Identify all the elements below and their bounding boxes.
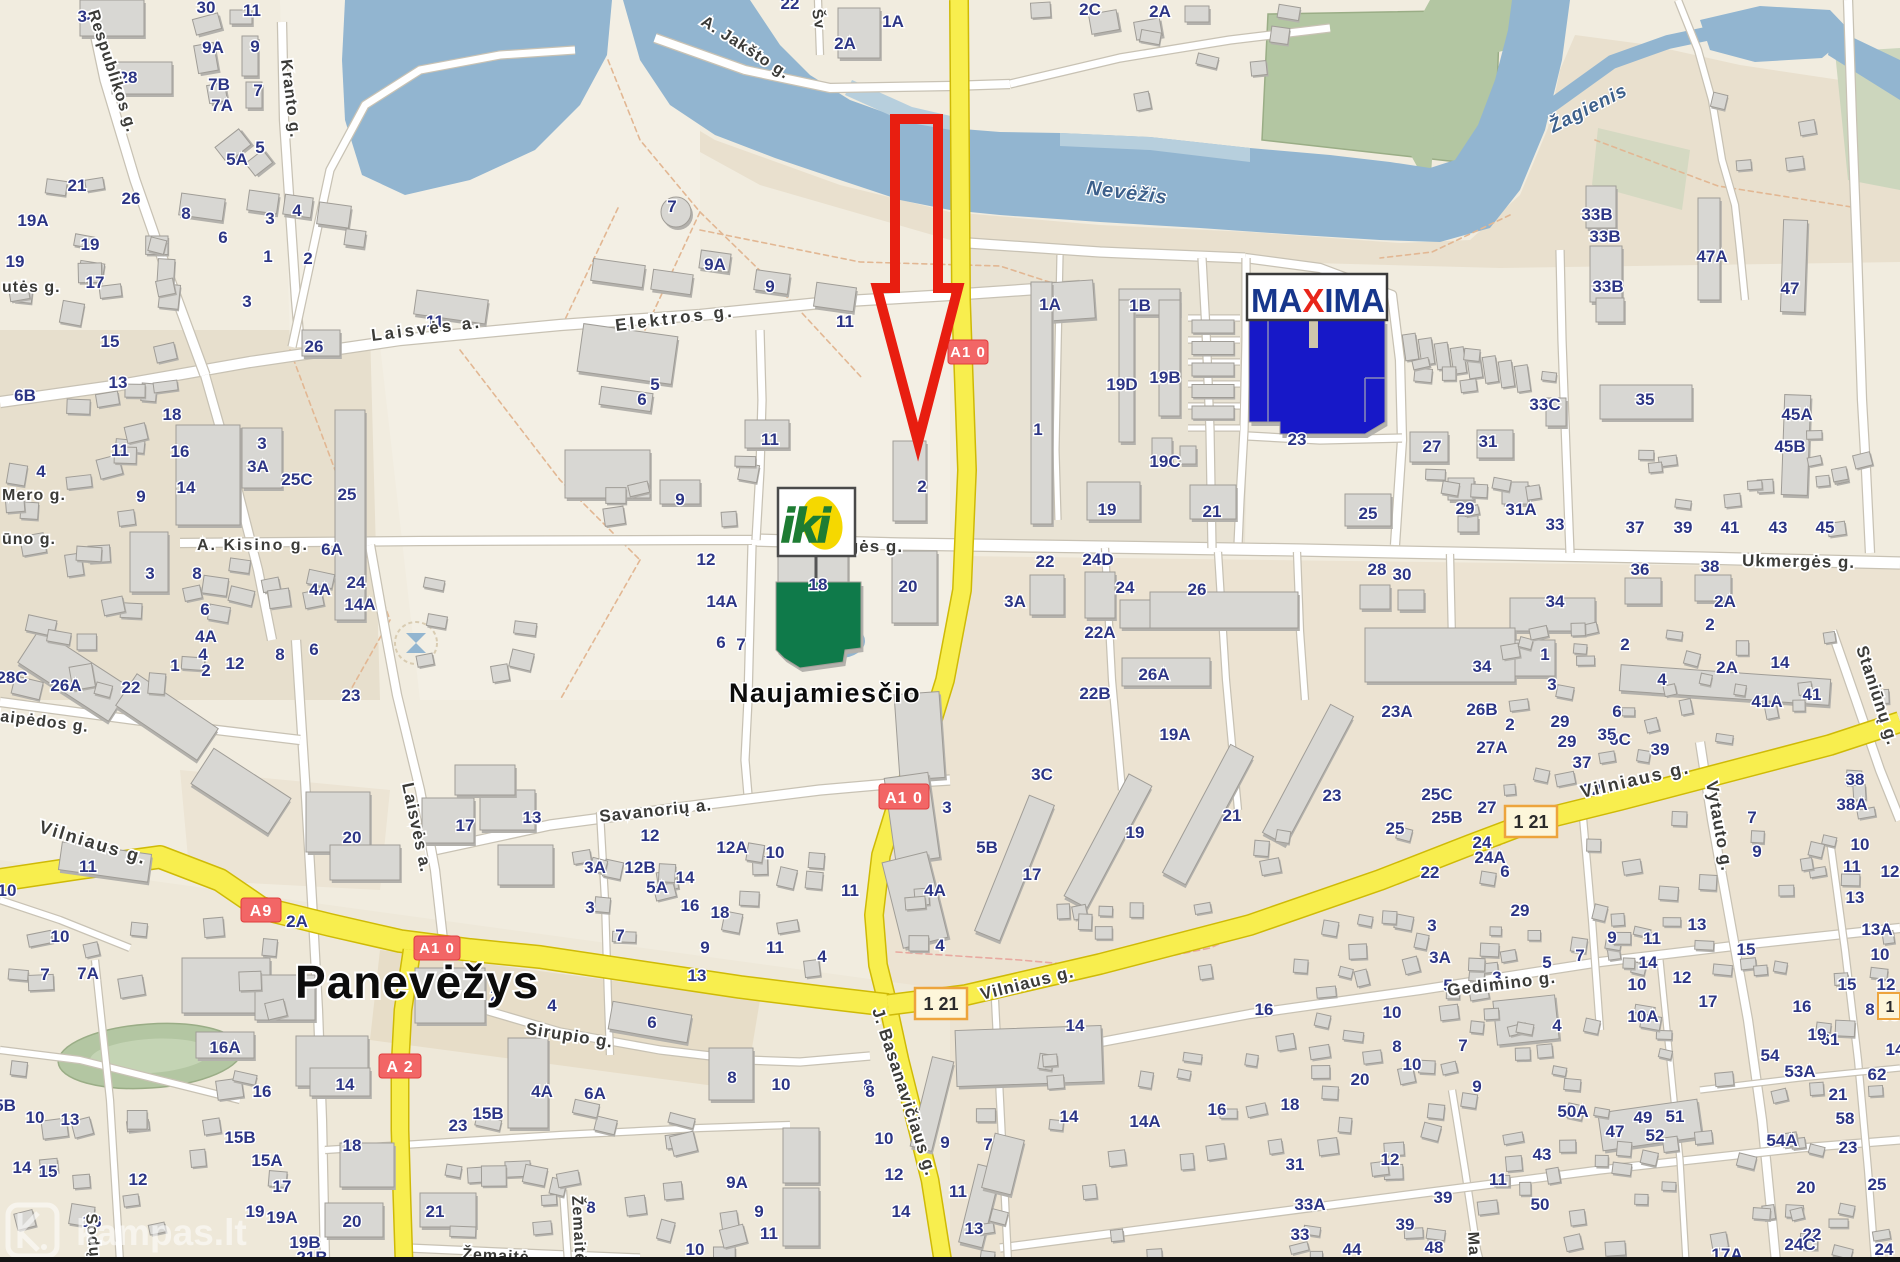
svg-text:3A: 3A	[1429, 948, 1451, 967]
svg-text:10: 10	[772, 1075, 791, 1094]
svg-text:12A: 12A	[716, 838, 747, 857]
svg-text:23A: 23A	[1381, 702, 1412, 721]
svg-text:2A: 2A	[1716, 658, 1738, 677]
svg-text:8: 8	[865, 1082, 874, 1101]
svg-text:12: 12	[1877, 975, 1896, 994]
svg-text:26: 26	[305, 337, 324, 356]
svg-text:11: 11	[1643, 929, 1661, 948]
svg-text:29: 29	[1558, 732, 1577, 751]
svg-text:37: 37	[1626, 518, 1645, 537]
svg-text:utės g.: utės g.	[2, 279, 61, 296]
svg-text:26: 26	[122, 189, 141, 208]
svg-text:3A: 3A	[584, 858, 606, 877]
svg-text:27: 27	[1423, 437, 1442, 456]
svg-text:21: 21	[426, 1202, 445, 1221]
svg-text:4: 4	[1657, 670, 1667, 689]
svg-text:12: 12	[1381, 1150, 1400, 1169]
svg-text:33B: 33B	[1581, 205, 1612, 224]
svg-text:15: 15	[1737, 940, 1756, 959]
svg-text:10: 10	[1628, 975, 1647, 994]
svg-text:45B: 45B	[1774, 437, 1805, 456]
svg-text:A1 0: A1 0	[950, 344, 986, 361]
svg-text:11: 11	[949, 1182, 967, 1201]
svg-text:9: 9	[250, 37, 259, 56]
svg-text:54: 54	[1761, 1046, 1780, 1065]
svg-text:12: 12	[641, 826, 660, 845]
svg-text:6: 6	[647, 1013, 656, 1032]
svg-text:10: 10	[51, 927, 70, 946]
svg-text:7: 7	[1747, 808, 1756, 827]
svg-text:6: 6	[200, 600, 209, 619]
svg-text:35: 35	[1598, 725, 1617, 744]
svg-text:28C: 28C	[0, 668, 28, 687]
svg-text:10: 10	[26, 1108, 45, 1127]
svg-text:18: 18	[163, 405, 182, 424]
svg-text:20: 20	[1797, 1178, 1816, 1197]
svg-text:12: 12	[697, 550, 716, 569]
svg-text:52: 52	[1646, 1126, 1665, 1145]
svg-text:5: 5	[255, 138, 264, 157]
svg-text:41A: 41A	[1751, 692, 1782, 711]
svg-text:11: 11	[761, 430, 779, 449]
svg-text:26A: 26A	[1138, 665, 1169, 684]
svg-text:11: 11	[111, 441, 129, 460]
svg-text:7: 7	[253, 81, 262, 100]
svg-text:26A: 26A	[50, 676, 81, 695]
svg-text:28: 28	[1368, 560, 1387, 579]
svg-text:15: 15	[1838, 975, 1857, 994]
svg-text:21: 21	[68, 176, 87, 195]
svg-text:5A: 5A	[226, 150, 248, 169]
svg-text:24D: 24D	[1082, 550, 1113, 569]
svg-text:6: 6	[637, 390, 646, 409]
svg-text:34: 34	[1473, 657, 1492, 676]
svg-text:13: 13	[688, 966, 707, 985]
svg-text:19: 19	[6, 252, 25, 271]
svg-text:9: 9	[675, 490, 684, 509]
svg-text:21: 21	[1223, 806, 1242, 825]
svg-text:9: 9	[754, 1202, 763, 1221]
svg-text:14: 14	[1639, 953, 1658, 972]
svg-text:23: 23	[1839, 1138, 1858, 1157]
svg-text:2: 2	[917, 477, 926, 496]
svg-text:22: 22	[1036, 552, 1055, 571]
svg-text:22B: 22B	[1079, 684, 1110, 703]
svg-text:15B: 15B	[224, 1128, 255, 1147]
svg-text:1A: 1A	[1039, 295, 1061, 314]
svg-text:22A: 22A	[1084, 623, 1115, 642]
svg-text:14A: 14A	[344, 595, 375, 614]
svg-text:8: 8	[1865, 1000, 1874, 1019]
svg-text:38: 38	[1701, 557, 1720, 576]
svg-text:22: 22	[122, 678, 141, 697]
svg-text:6: 6	[716, 633, 725, 652]
svg-text:9: 9	[1752, 842, 1761, 861]
svg-text:26: 26	[1188, 580, 1207, 599]
svg-text:13: 13	[965, 1219, 984, 1238]
svg-text:2: 2	[201, 661, 210, 680]
svg-text:10: 10	[1851, 835, 1870, 854]
svg-text:5A: 5A	[646, 878, 668, 897]
svg-text:14A: 14A	[1129, 1112, 1160, 1131]
svg-text:7: 7	[983, 1135, 992, 1154]
svg-text:23: 23	[342, 686, 361, 705]
svg-text:1: 1	[1033, 420, 1042, 439]
svg-text:13: 13	[109, 373, 128, 392]
svg-text:5B: 5B	[0, 1096, 16, 1115]
svg-text:16: 16	[681, 896, 700, 915]
svg-text:25: 25	[1386, 819, 1405, 838]
svg-text:10A: 10A	[1627, 1007, 1658, 1026]
svg-text:7: 7	[615, 926, 624, 945]
svg-text:4A: 4A	[195, 627, 217, 646]
svg-text:2C: 2C	[1079, 0, 1101, 19]
svg-text:19B: 19B	[1149, 368, 1180, 387]
svg-text:17: 17	[86, 273, 105, 292]
svg-text:6: 6	[1500, 862, 1509, 881]
svg-text:9A: 9A	[202, 38, 224, 57]
svg-text:10: 10	[1871, 945, 1890, 964]
svg-text:15A: 15A	[251, 1151, 282, 1170]
svg-text:Ukmergės g.: Ukmergės g.	[1742, 551, 1855, 572]
svg-text:14: 14	[1066, 1016, 1085, 1035]
svg-text:2A: 2A	[286, 912, 308, 931]
svg-text:18: 18	[343, 1136, 362, 1155]
svg-text:11: 11	[766, 938, 784, 957]
svg-text:19: 19	[81, 235, 100, 254]
svg-text:20: 20	[1351, 1070, 1370, 1089]
svg-text:3A: 3A	[1004, 592, 1026, 611]
svg-text:7: 7	[40, 965, 49, 984]
svg-text:11: 11	[836, 312, 854, 331]
svg-text:4: 4	[935, 936, 945, 955]
svg-text:8: 8	[586, 1198, 595, 1217]
svg-text:11: 11	[1843, 857, 1861, 876]
svg-text:10: 10	[686, 1240, 705, 1259]
svg-text:49: 49	[1634, 1108, 1653, 1127]
svg-text:19A: 19A	[266, 1208, 297, 1227]
svg-text:47: 47	[1606, 1122, 1625, 1141]
svg-text:19D: 19D	[1106, 375, 1137, 394]
svg-text:45A: 45A	[1781, 405, 1812, 424]
svg-text:6: 6	[309, 640, 318, 659]
svg-text:A1 0: A1 0	[419, 940, 455, 957]
svg-text:A. Kisino g.: A. Kisino g.	[197, 537, 309, 554]
svg-text:29: 29	[1456, 499, 1475, 518]
svg-text:13: 13	[1846, 888, 1865, 907]
svg-text:50A: 50A	[1557, 1102, 1588, 1121]
svg-text:7: 7	[667, 197, 676, 216]
svg-text:3: 3	[1547, 675, 1556, 694]
svg-text:12B: 12B	[624, 858, 655, 877]
svg-text:17: 17	[1699, 992, 1718, 1011]
svg-text:62: 62	[1868, 1065, 1887, 1084]
svg-text:2A: 2A	[834, 34, 856, 53]
svg-text:10: 10	[1403, 1055, 1422, 1074]
svg-text:19A: 19A	[1159, 725, 1190, 744]
svg-text:25: 25	[1868, 1175, 1887, 1194]
svg-text:10: 10	[1383, 1003, 1402, 1022]
svg-text:31A: 31A	[1505, 500, 1536, 519]
svg-text:13: 13	[523, 808, 542, 827]
svg-text:A1 0: A1 0	[885, 790, 923, 807]
svg-text:4: 4	[1552, 1016, 1562, 1035]
svg-text:41: 41	[1803, 685, 1822, 704]
svg-text:19: 19	[1808, 1025, 1827, 1044]
svg-text:22: 22	[1421, 863, 1440, 882]
svg-text:53A: 53A	[1784, 1062, 1815, 1081]
svg-text:9: 9	[700, 938, 709, 957]
svg-text:30: 30	[1393, 565, 1412, 584]
svg-text:14: 14	[892, 1202, 911, 1221]
svg-text:12: 12	[226, 654, 245, 673]
svg-text:4: 4	[292, 201, 302, 220]
svg-text:12: 12	[1881, 862, 1900, 881]
svg-text:17: 17	[273, 1177, 292, 1196]
svg-text:9: 9	[1472, 1077, 1481, 1096]
svg-text:19: 19	[1126, 823, 1145, 842]
svg-text:14A: 14A	[706, 592, 737, 611]
svg-text:45: 45	[1816, 518, 1835, 537]
svg-text:16: 16	[1208, 1100, 1227, 1119]
svg-text:9: 9	[136, 487, 145, 506]
svg-text:3: 3	[265, 209, 274, 228]
svg-text:13A: 13A	[1861, 920, 1892, 939]
svg-text:20: 20	[899, 577, 918, 596]
svg-text:14: 14	[13, 1158, 32, 1177]
svg-text:15: 15	[101, 332, 120, 351]
svg-text:51: 51	[1666, 1107, 1685, 1126]
svg-text:30: 30	[197, 0, 216, 17]
svg-text:54A: 54A	[1766, 1131, 1797, 1150]
svg-text:33: 33	[1546, 515, 1565, 534]
svg-text:15B: 15B	[472, 1104, 503, 1123]
svg-text:4: 4	[36, 462, 46, 481]
svg-text:18: 18	[711, 903, 730, 922]
svg-text:34: 34	[1546, 592, 1565, 611]
svg-text:9: 9	[1607, 928, 1616, 947]
svg-text:12: 12	[1673, 968, 1692, 987]
svg-text:39: 39	[1674, 518, 1693, 537]
svg-text:6A: 6A	[584, 1084, 606, 1103]
svg-text:7: 7	[1575, 946, 1584, 965]
svg-text:4A: 4A	[924, 881, 946, 900]
svg-text:6A: 6A	[321, 540, 343, 559]
svg-text:11: 11	[841, 881, 859, 900]
svg-text:14: 14	[336, 1075, 355, 1094]
svg-text:2A: 2A	[1149, 2, 1171, 21]
svg-text:14: 14	[1771, 653, 1790, 672]
svg-text:16: 16	[1255, 1000, 1274, 1019]
svg-text:20: 20	[343, 1212, 362, 1231]
svg-text:19A: 19A	[17, 211, 48, 230]
svg-text:44: 44	[1343, 1240, 1362, 1259]
svg-text:1 21: 1 21	[1513, 812, 1548, 832]
svg-text:kampas.lt: kampas.lt	[76, 1212, 247, 1253]
svg-text:20: 20	[343, 828, 362, 847]
svg-text:iki: iki	[781, 500, 832, 553]
svg-text:25B: 25B	[1431, 808, 1462, 827]
svg-text:5B: 5B	[976, 838, 998, 857]
svg-text:9A: 9A	[726, 1173, 748, 1192]
svg-text:33B: 33B	[1592, 277, 1623, 296]
svg-text:8: 8	[275, 645, 284, 664]
svg-text:Šv: Šv	[808, 8, 829, 31]
svg-text:9A: 9A	[704, 255, 726, 274]
svg-text:3: 3	[1427, 916, 1436, 935]
svg-text:1: 1	[1886, 999, 1895, 1016]
svg-text:14: 14	[676, 868, 695, 887]
svg-text:24: 24	[1875, 1240, 1894, 1259]
svg-text:14: 14	[1886, 1040, 1900, 1059]
svg-text:19C: 19C	[1149, 452, 1180, 471]
svg-text:10: 10	[875, 1129, 894, 1148]
svg-text:13: 13	[61, 1110, 80, 1129]
svg-text:25C: 25C	[1421, 785, 1452, 804]
svg-text:41: 41	[1721, 518, 1740, 537]
svg-text:29: 29	[1551, 712, 1570, 731]
svg-text:11: 11	[243, 1, 261, 20]
svg-text:3C: 3C	[1031, 765, 1053, 784]
svg-text:Panevėžys: Panevėžys	[295, 956, 539, 1008]
svg-text:9: 9	[765, 277, 774, 296]
svg-text:3: 3	[257, 434, 266, 453]
svg-text:31: 31	[1286, 1155, 1305, 1174]
svg-text:5: 5	[650, 375, 659, 394]
svg-text:2: 2	[303, 249, 312, 268]
svg-text:7A: 7A	[77, 964, 99, 983]
svg-text:8: 8	[181, 204, 190, 223]
svg-text:43: 43	[1769, 518, 1788, 537]
svg-text:58: 58	[1836, 1109, 1855, 1128]
svg-text:16: 16	[253, 1082, 272, 1101]
svg-text:13: 13	[1688, 915, 1707, 934]
svg-text:1: 1	[1540, 645, 1549, 664]
svg-text:19: 19	[1098, 500, 1117, 519]
svg-text:25: 25	[338, 485, 357, 504]
svg-text:33C: 33C	[1529, 395, 1560, 414]
svg-text:4: 4	[547, 996, 557, 1015]
svg-text:10: 10	[0, 881, 16, 900]
svg-text:1 21: 1 21	[923, 994, 958, 1014]
svg-text:4: 4	[817, 947, 827, 966]
svg-text:11: 11	[760, 1224, 778, 1243]
svg-text:37: 37	[1573, 753, 1592, 772]
svg-text:43: 43	[1533, 1145, 1552, 1164]
svg-text:7A: 7A	[211, 96, 233, 115]
svg-text:18: 18	[809, 575, 828, 594]
svg-text:33: 33	[1291, 1225, 1310, 1244]
svg-text:48: 48	[1425, 1238, 1444, 1257]
svg-text:9: 9	[940, 1133, 949, 1152]
svg-text:MAXIMA: MAXIMA	[1251, 282, 1385, 319]
svg-text:39: 39	[1651, 740, 1670, 759]
svg-text:47: 47	[1781, 279, 1800, 298]
svg-text:8: 8	[192, 564, 201, 583]
svg-text:14: 14	[1060, 1107, 1079, 1126]
svg-text:23: 23	[1288, 430, 1307, 449]
svg-text:24C: 24C	[1784, 1235, 1815, 1254]
svg-text:22: 22	[781, 0, 800, 13]
svg-text:7: 7	[736, 635, 745, 654]
svg-text:16: 16	[1793, 997, 1812, 1016]
svg-text:31: 31	[1479, 432, 1498, 451]
svg-text:8: 8	[727, 1068, 736, 1087]
svg-text:14: 14	[177, 478, 196, 497]
svg-text:3: 3	[585, 898, 594, 917]
svg-text:A 2: A 2	[386, 1059, 413, 1076]
svg-text:33A: 33A	[1294, 1195, 1325, 1214]
svg-text:25: 25	[1359, 504, 1378, 523]
svg-text:24: 24	[1116, 578, 1135, 597]
svg-text:1A: 1A	[882, 12, 904, 31]
svg-text:Mero g.: Mero g.	[2, 487, 66, 504]
svg-text:3: 3	[242, 292, 251, 311]
svg-text:6B: 6B	[14, 386, 36, 405]
svg-text:ūno g.: ūno g.	[2, 531, 56, 548]
svg-text:17: 17	[456, 816, 475, 835]
svg-text:21: 21	[1829, 1085, 1848, 1104]
svg-text:27A: 27A	[1476, 738, 1507, 757]
svg-text:2: 2	[1705, 615, 1714, 634]
svg-text:2: 2	[1505, 715, 1514, 734]
svg-text:29: 29	[1511, 901, 1530, 920]
svg-text:11: 11	[1489, 1170, 1507, 1189]
svg-text:24: 24	[347, 573, 366, 592]
svg-text:12: 12	[885, 1165, 904, 1184]
svg-text:39: 39	[1396, 1215, 1415, 1234]
svg-text:1: 1	[263, 247, 272, 266]
svg-text:27: 27	[1478, 798, 1497, 817]
svg-text:A9: A9	[250, 903, 272, 920]
svg-text:3A: 3A	[247, 457, 269, 476]
svg-text:16A: 16A	[209, 1038, 240, 1057]
svg-text:6: 6	[218, 228, 227, 247]
svg-text:11: 11	[79, 857, 97, 876]
svg-text:21: 21	[1203, 502, 1222, 521]
svg-text:7B: 7B	[208, 75, 230, 94]
svg-text:16: 16	[171, 442, 190, 461]
svg-text:4A: 4A	[531, 1082, 553, 1101]
svg-text:3: 3	[942, 798, 951, 817]
svg-text:18: 18	[1281, 1095, 1300, 1114]
svg-text:35: 35	[1636, 390, 1655, 409]
svg-text:19: 19	[246, 1202, 265, 1221]
svg-text:12: 12	[129, 1170, 148, 1189]
svg-text:8: 8	[1392, 1037, 1401, 1056]
svg-text:2A: 2A	[1714, 592, 1736, 611]
svg-text:4A: 4A	[309, 580, 331, 599]
svg-text:36: 36	[1631, 560, 1650, 579]
svg-text:3: 3	[145, 564, 154, 583]
svg-text:2: 2	[1620, 635, 1629, 654]
svg-text:47A: 47A	[1696, 247, 1727, 266]
svg-text:26B: 26B	[1466, 700, 1497, 719]
svg-text:17: 17	[1023, 865, 1042, 884]
svg-text:1B: 1B	[1129, 296, 1151, 315]
svg-text:33B: 33B	[1589, 227, 1620, 246]
svg-text:7: 7	[1458, 1036, 1467, 1055]
svg-text:Naujamiesčio: Naujamiesčio	[729, 678, 921, 708]
svg-text:50: 50	[1531, 1195, 1550, 1214]
svg-text:38: 38	[1846, 770, 1865, 789]
svg-text:23: 23	[449, 1116, 468, 1135]
svg-text:15: 15	[39, 1162, 58, 1181]
svg-text:23: 23	[1323, 786, 1342, 805]
svg-text:6: 6	[1612, 702, 1621, 721]
svg-text:39: 39	[1434, 1188, 1453, 1207]
svg-text:10: 10	[766, 843, 785, 862]
